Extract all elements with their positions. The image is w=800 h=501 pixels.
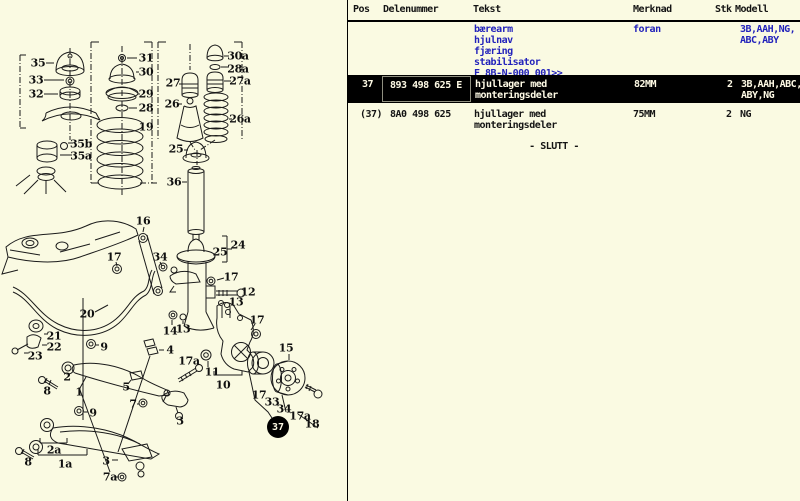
part-label-35a: 35a (70, 150, 92, 163)
part-label-8: 8 (24, 456, 31, 469)
part-row-selected[interactable]: 37 893 498 625 E hjullager med montering… (348, 75, 800, 103)
part-pos: 37 (362, 79, 373, 90)
part-tekst-line: monteringsdeler (474, 120, 557, 131)
part-label-1a: 1a (58, 458, 72, 471)
part-number: 8A0 498 625 (390, 109, 451, 120)
part-tekst-line: hjullager med (475, 79, 547, 90)
end-of-list-marker: - SLUTT - (519, 141, 589, 152)
part-label-3: 3 (102, 455, 109, 468)
selected-position-badge[interactable]: 37 (267, 416, 289, 438)
part-label-7a: 7a (103, 471, 117, 484)
part-label-36: 36 (167, 176, 182, 189)
col-header-modell: Modell (735, 4, 768, 15)
part-merknad: 75MM (633, 109, 655, 120)
header-underline (348, 20, 800, 22)
part-label-32: 32 (29, 88, 44, 101)
part-label-2a: 2a (47, 444, 61, 457)
parts-catalog-window: 3533323130292819272630a28a27a26a253635b3… (0, 0, 800, 501)
part-label-1: 1 (75, 386, 82, 399)
col-header-tekst: Tekst (473, 4, 501, 15)
part-label-17: 17 (250, 314, 265, 327)
part-stk: 2 (727, 79, 733, 90)
part-stk: 2 (726, 109, 732, 120)
part-modell-line: NG (740, 109, 751, 120)
suspension-diagram-drawing (0, 0, 347, 501)
part-label-9: 9 (100, 341, 107, 354)
part-label-2: 2 (63, 371, 70, 384)
part-label-20: 20 (80, 308, 95, 321)
part-label-29: 29 (139, 88, 154, 101)
part-label-17: 17 (224, 271, 239, 284)
part-tekst-line: hjullager med (474, 109, 546, 120)
part-modell-line: 3B,AAH,ABC, (741, 79, 800, 90)
part-label-17a: 17a (178, 355, 200, 368)
group-tekst-line: bærearm (474, 24, 513, 35)
parts-list-panel: Pos Delenummer Tekst Merknad Stk Modell … (347, 0, 800, 501)
part-label-31: 31 (139, 52, 154, 65)
part-pos: (37) (360, 109, 382, 120)
part-label-9: 9 (89, 407, 96, 420)
part-label-18: 18 (305, 418, 320, 431)
group-tekst-line: fjæring (474, 46, 513, 57)
part-label-25: 25 (169, 143, 184, 156)
part-label-25: 25 (213, 246, 228, 259)
part-modell-line: ABY,NG (741, 90, 774, 101)
col-header-pos: Pos (353, 4, 370, 15)
exploded-diagram-panel: 3533323130292819272630a28a27a26a253635b3… (0, 0, 347, 501)
part-label-34: 34 (153, 251, 168, 264)
group-merknad: foran (633, 24, 661, 35)
part-label-8: 8 (43, 385, 50, 398)
part-label-5: 5 (122, 381, 129, 394)
part-number: 893 498 625 E (390, 80, 462, 91)
part-label-30a: 30a (227, 50, 249, 63)
part-label-16: 16 (136, 215, 151, 228)
group-tekst-line: stabilisator (474, 57, 540, 68)
part-label-10: 10 (216, 379, 231, 392)
part-tekst-line: monteringsdeler (475, 90, 558, 101)
col-header-stk: Stk (715, 4, 732, 15)
group-tekst-line: hjulnav (474, 35, 513, 46)
part-label-30: 30 (139, 66, 154, 79)
part-label-22: 22 (47, 341, 62, 354)
part-label-24: 24 (231, 239, 246, 252)
part-label-26: 26 (165, 98, 180, 111)
part-label-27: 27 (166, 77, 181, 90)
part-label-17: 17 (107, 251, 122, 264)
col-header-delenummer: Delenummer (383, 4, 438, 15)
part-label-23: 23 (28, 350, 43, 363)
part-label-15: 15 (279, 342, 294, 355)
part-label-3: 3 (176, 415, 183, 428)
part-label-19: 19 (139, 121, 154, 134)
part-merknad: 82MM (634, 79, 656, 90)
part-label-35: 35 (31, 57, 46, 70)
col-header-merknad: Merknad (633, 4, 672, 15)
part-label-28: 28 (139, 102, 154, 115)
group-modell-line: ABC,ABY (740, 35, 779, 46)
part-label-13: 13 (176, 323, 191, 336)
part-number-box[interactable]: 893 498 625 E (382, 76, 471, 102)
part-label-7: 7 (129, 398, 136, 411)
part-label-11: 11 (205, 366, 220, 379)
part-label-13: 13 (229, 296, 244, 309)
part-label-4: 4 (166, 344, 173, 357)
group-modell-line: 3B,AAH,NG, (740, 24, 795, 35)
part-label-33: 33 (29, 74, 44, 87)
part-label-26a: 26a (229, 113, 251, 126)
part-label-27a: 27a (229, 75, 251, 88)
